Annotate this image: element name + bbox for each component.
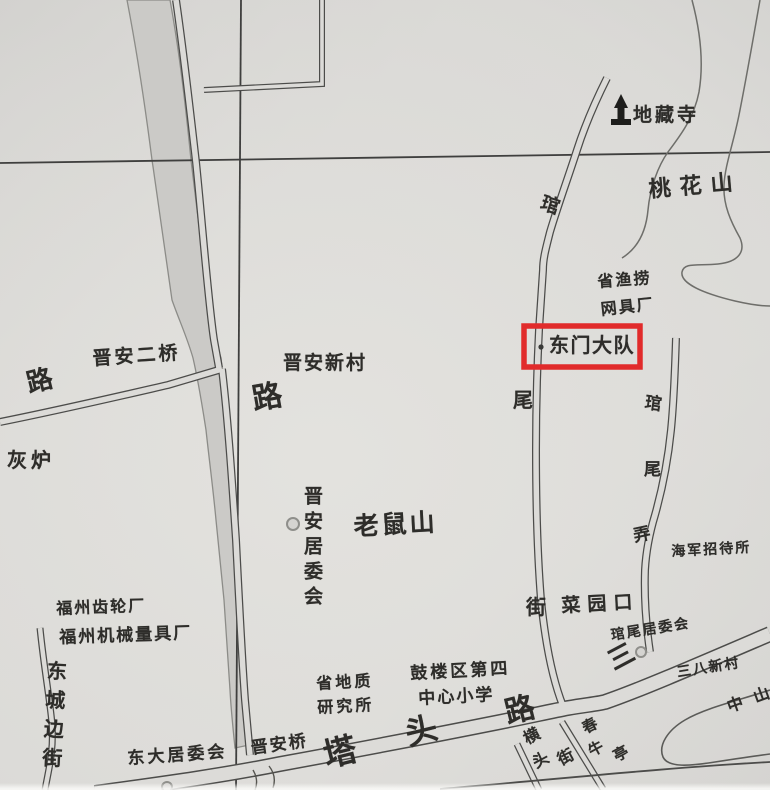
label-huilu: 灰炉 <box>7 450 55 470</box>
committee-circle-guanwei <box>636 647 646 657</box>
label-gear-factory: 福州齿轮厂 <box>56 598 147 617</box>
map-screenshot: 地藏寺 桃花山 省渔捞 网具厂 东门大队 晋安二桥 晋安新村 路 路 灰炉 晋安… <box>0 0 770 790</box>
label-jinan-xincun: 晋安新村 <box>283 354 367 373</box>
label-machinery-factory: 福州机械量具厂 <box>59 625 193 647</box>
label-guanwei-lane-char1: 琯 <box>644 395 663 414</box>
structure-top <box>204 0 322 90</box>
label-dizang-temple: 地藏寺 <box>633 106 699 125</box>
label-navy-guesthouse: 海军招待所 <box>671 541 752 559</box>
label-guanwei-lane-char3: 弄 <box>632 525 652 545</box>
label-dongmen-brigade: 东门大队 <box>549 335 635 355</box>
stream-west <box>622 0 701 258</box>
label-guanwei-street-char2: 尾 <box>513 390 533 410</box>
label-geology-institute-line1: 省地质 <box>316 673 374 692</box>
committee-circle-jinan <box>287 518 299 530</box>
label-road-junction: 路 <box>250 381 285 416</box>
photo-edge-fade <box>0 783 770 790</box>
dot-marker <box>538 344 543 349</box>
label-laoshu-hill: 老鼠山 <box>353 510 438 539</box>
label-fishing-gear-factory-line1: 省渔捞 <box>597 270 652 290</box>
label-caiyuankou: 菜园口 <box>561 593 640 616</box>
grid-line-horizontal <box>0 152 770 163</box>
label-dongchengbian-street: 东城边街 <box>40 660 66 777</box>
label-guanwei-street-char3: 街 <box>526 597 546 617</box>
label-guanwei-lane-char2: 尾 <box>644 462 661 479</box>
temple-icon <box>611 94 631 125</box>
label-gulou-school-line2: 中心小学 <box>418 687 495 708</box>
label-geology-institute-line2: 研究所 <box>317 697 375 716</box>
structure-top-fill <box>204 0 322 90</box>
label-jinan-committee: 晋安居委会 <box>302 486 321 611</box>
